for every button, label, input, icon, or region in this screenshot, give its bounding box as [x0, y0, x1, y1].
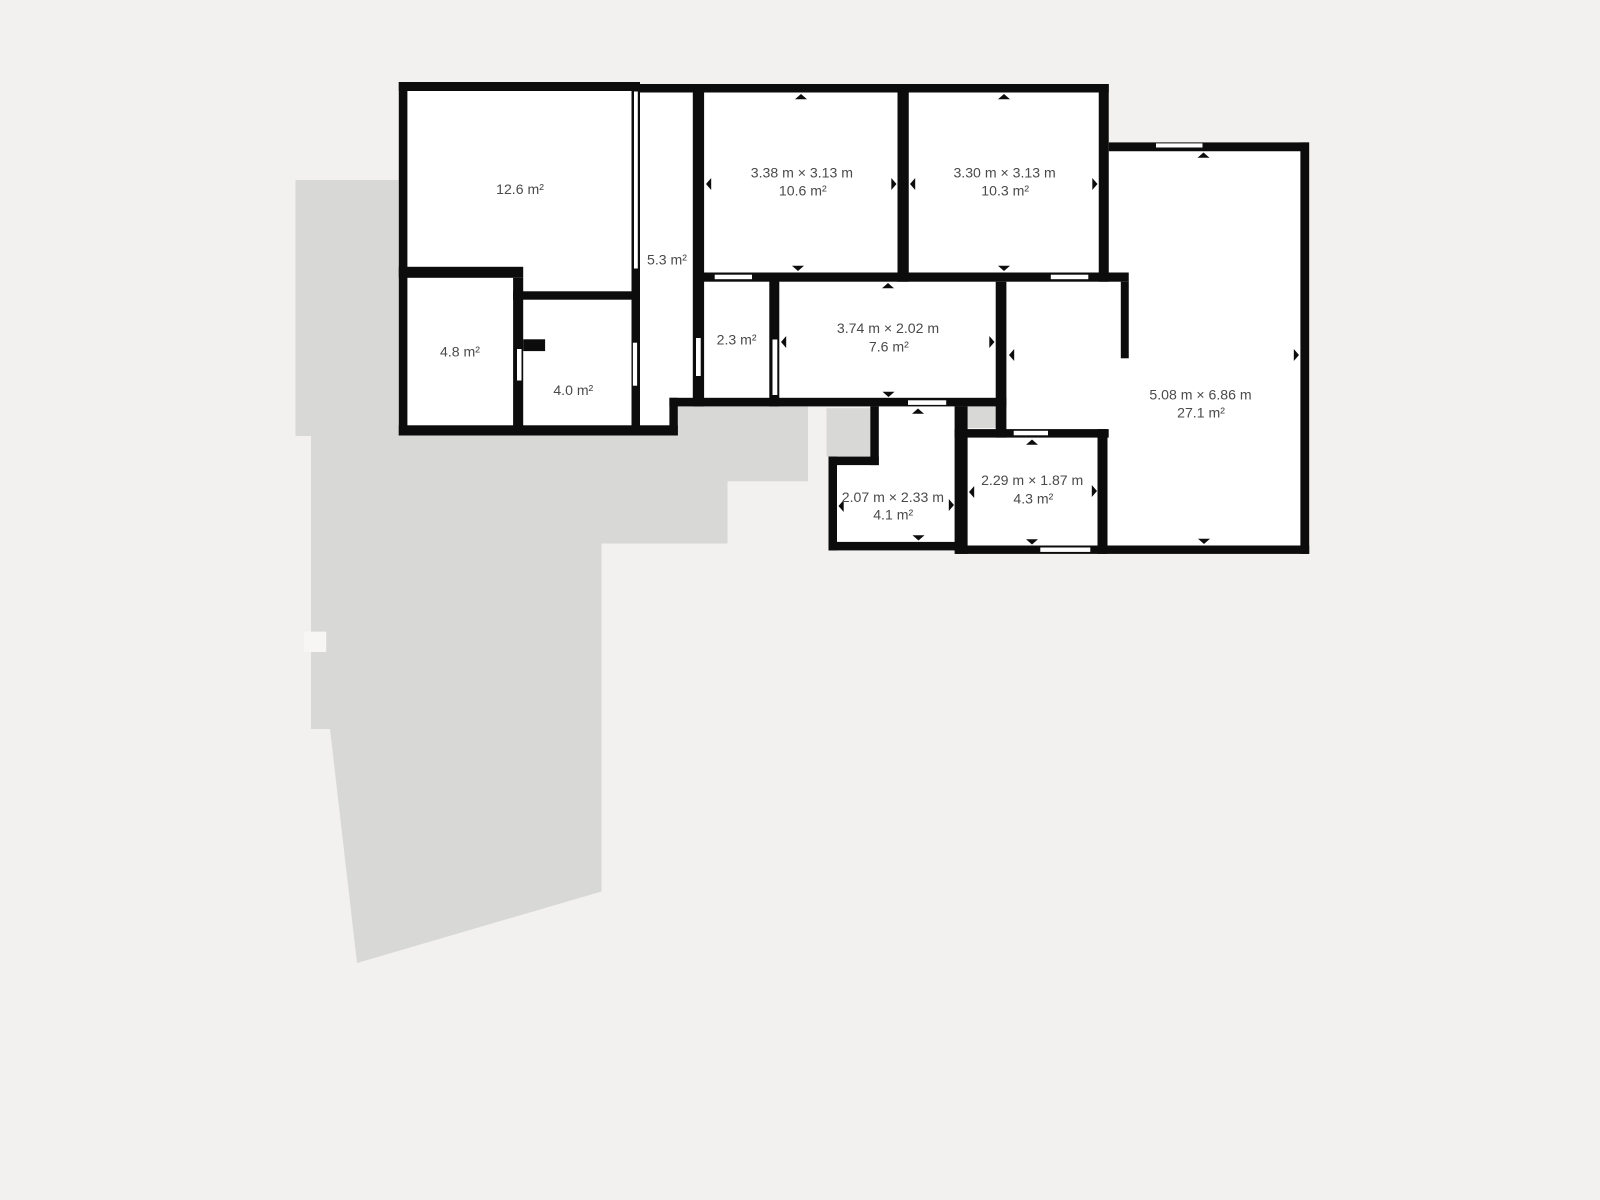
svg-text:5.3 m²: 5.3 m² — [647, 251, 687, 267]
svg-text:10.3 m²: 10.3 m² — [981, 182, 1029, 198]
svg-text:2.07 m × 2.33 m: 2.07 m × 2.33 m — [842, 489, 944, 505]
svg-text:3.38 m × 3.13 m: 3.38 m × 3.13 m — [751, 164, 853, 180]
svg-text:4.8 m²: 4.8 m² — [440, 344, 480, 360]
svg-text:3.30 m × 3.13 m: 3.30 m × 3.13 m — [953, 164, 1055, 180]
svg-text:2.3 m²: 2.3 m² — [717, 332, 757, 348]
svg-text:10.6 m²: 10.6 m² — [779, 182, 827, 198]
svg-text:4.0 m²: 4.0 m² — [553, 382, 593, 398]
svg-text:4.3 m²: 4.3 m² — [1013, 490, 1053, 506]
svg-text:2.29 m × 1.87 m: 2.29 m × 1.87 m — [981, 472, 1083, 488]
svg-text:4.1 m²: 4.1 m² — [873, 506, 913, 522]
svg-text:7.6 m²: 7.6 m² — [869, 339, 909, 355]
svg-text:5.08 m × 6.86 m: 5.08 m × 6.86 m — [1149, 386, 1251, 402]
svg-text:27.1 m²: 27.1 m² — [1177, 405, 1225, 421]
svg-text:3.74 m × 2.02 m: 3.74 m × 2.02 m — [837, 320, 939, 336]
svg-text:12.6 m²: 12.6 m² — [496, 181, 544, 197]
